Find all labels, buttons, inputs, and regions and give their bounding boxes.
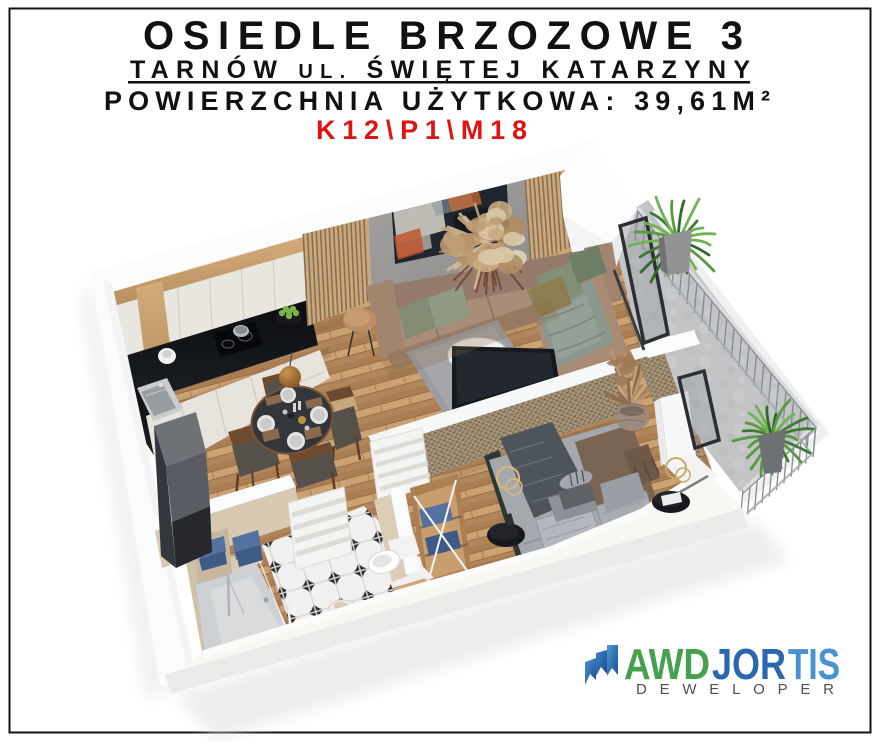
svg-text:JOR: JOR [712,640,786,689]
svg-text:POWIERZCHNIA UŻYTKOWA: 39,61M²: POWIERZCHNIA UŻYTKOWA: 39,61M² [104,86,770,116]
svg-text:DEWELOPER: DEWELOPER [636,681,834,698]
